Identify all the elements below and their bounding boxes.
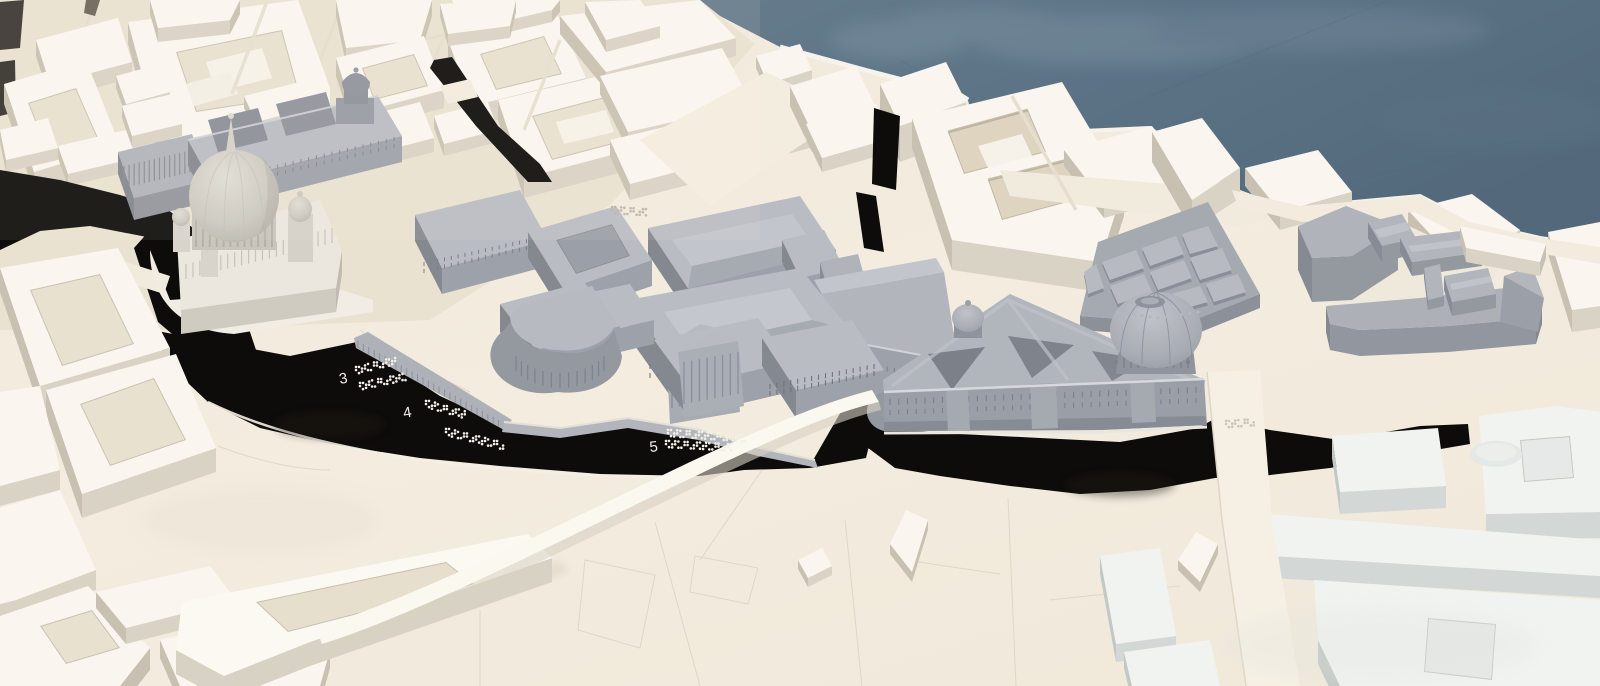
svg-text:5: 5 bbox=[649, 438, 659, 456]
